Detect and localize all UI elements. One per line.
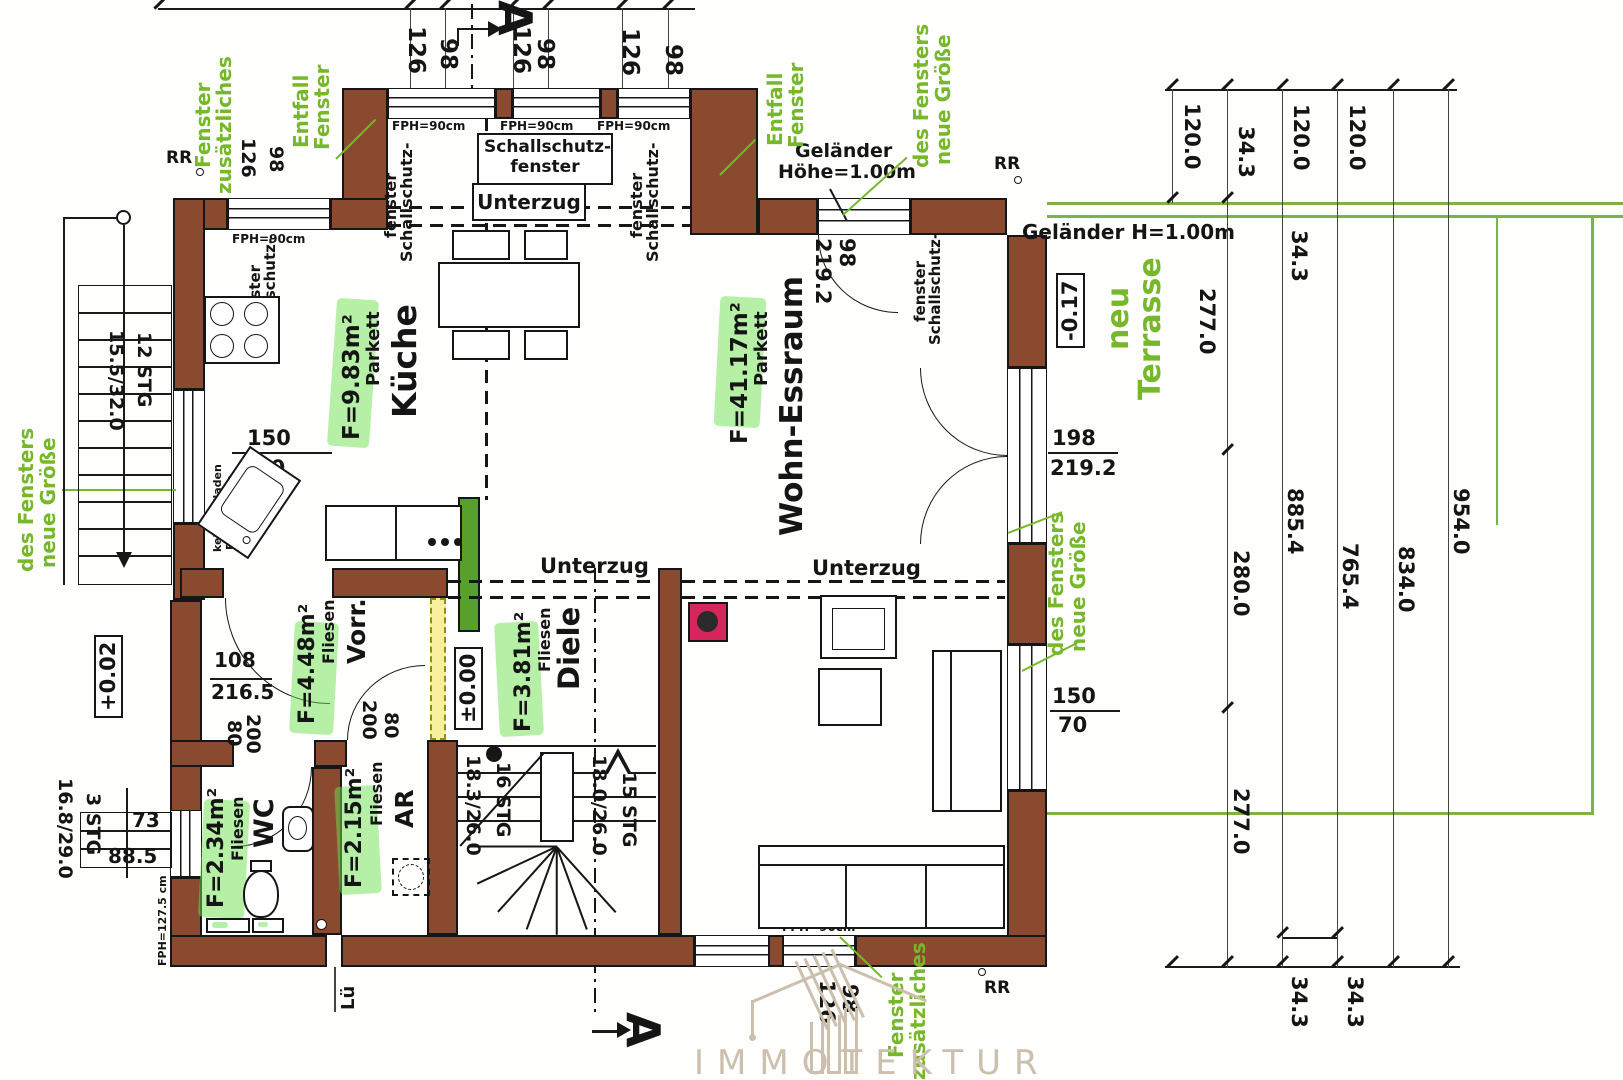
wall <box>180 568 224 598</box>
soundproof-label: fenster <box>913 261 928 322</box>
wall <box>690 88 758 235</box>
cooktop-knob-icon <box>441 538 449 546</box>
dim-label: 70 <box>1058 715 1087 736</box>
rr-icon <box>1014 176 1022 184</box>
terrace-door <box>1007 368 1047 543</box>
dim-label: 34.3 <box>1288 976 1309 1028</box>
dim-label: 280.0 <box>1230 550 1251 616</box>
window <box>173 390 205 523</box>
soundproof-label: fenster <box>629 173 645 238</box>
stair-tread <box>78 474 172 476</box>
terrace-edge <box>1047 215 1623 218</box>
dim-label: 219.2 <box>1050 458 1116 479</box>
dim-label: 98 <box>266 146 285 172</box>
wall <box>427 740 458 935</box>
sofa <box>758 845 1005 929</box>
dim-label: 200 <box>359 700 378 740</box>
section-label-a: A <box>620 1012 666 1048</box>
annotation-new-window-size: neue Größe <box>933 34 953 165</box>
room-floor: Fliesen <box>321 599 337 664</box>
terrace-edge <box>1591 215 1594 815</box>
stair-tread <box>574 796 656 798</box>
section-arrow-line <box>457 28 489 30</box>
annotation-window-removed: Fenster <box>786 62 806 148</box>
soundproof-label: fenster <box>383 173 399 238</box>
dim-chain-line <box>1227 89 1228 968</box>
label-line: Schallschutz- <box>484 137 611 157</box>
stair-post-icon <box>486 746 502 762</box>
dim-chain-line <box>1172 89 1173 203</box>
stair-tread <box>574 820 656 822</box>
dim-label: 98 <box>661 44 684 76</box>
dim-label: 120.0 <box>1346 104 1367 170</box>
annotation-new-window-size: des Fensters <box>16 428 36 572</box>
chimney-flue-icon <box>697 611 718 632</box>
stair-label: 15.5/32.0 <box>106 330 125 431</box>
wall <box>173 198 205 390</box>
wall <box>330 198 388 230</box>
annotation-new-window-size: neue Größe <box>1068 521 1088 652</box>
dim-label: 198 <box>1052 428 1096 449</box>
shelf <box>252 918 284 933</box>
stair-winder-line <box>556 846 616 912</box>
dim-label: 277.0 <box>1196 288 1217 354</box>
section-arrow-line <box>592 1030 618 1033</box>
stair-newel-wall <box>540 752 574 842</box>
annotation-window-removed: Entfall <box>291 75 311 148</box>
door-arc <box>920 368 1007 456</box>
wall <box>855 935 1047 967</box>
terrace-edge <box>1047 202 1623 205</box>
dim-label: 765.4 <box>1339 543 1360 609</box>
section-arrow-line <box>457 30 459 46</box>
wall <box>341 935 695 967</box>
soundproof-label: Schallschutz- <box>928 233 943 345</box>
stair-tread <box>78 528 172 530</box>
dim-label: 126 <box>404 26 427 74</box>
dim-line <box>1050 710 1120 712</box>
dim-line <box>158 8 695 10</box>
annotation-terrace-new: Terrasse <box>1136 257 1166 400</box>
balcony-door <box>818 198 910 235</box>
room-name: AR <box>392 789 417 828</box>
rr-label: RR <box>166 150 192 167</box>
vent-label: Lü <box>340 986 358 1010</box>
wall <box>332 568 448 598</box>
vent-icon <box>316 919 327 930</box>
sofa-line <box>925 864 927 929</box>
room-area: F=2.34m² <box>206 788 228 908</box>
level-marker: +0.02 <box>94 635 123 718</box>
dim-label: 80 <box>224 720 243 746</box>
highlight-small <box>212 922 228 928</box>
beam-label: Unterzug <box>812 558 921 579</box>
railing-label: Geländer <box>795 142 892 161</box>
counter-divider <box>395 505 397 561</box>
fph-label: FPH=127.5 cm <box>157 875 168 966</box>
floor-plan: 126 98 126 98 126 98 A <box>0 0 1623 1080</box>
soundproof-label: Schallschutz- <box>645 142 661 262</box>
dim-line <box>1048 452 1118 454</box>
annotation-new-window-size: des Fensters <box>911 24 931 168</box>
stair-edge <box>458 745 656 747</box>
basin-bowl-icon <box>288 816 307 840</box>
logo-wall-line <box>751 1000 754 1036</box>
stair-label: 16.8/29.0 <box>55 778 74 879</box>
stair-label: 18.0/26.0 <box>589 755 608 856</box>
room-area: F=4.48m² <box>297 604 319 724</box>
rr-label: RR <box>984 980 1010 997</box>
fph-label: FPH=90cm <box>232 233 305 245</box>
burner-icon <box>210 302 234 326</box>
dining-table <box>438 262 580 328</box>
annotation-terrace-new: neu <box>1104 287 1134 350</box>
room-floor: Parkett <box>753 311 771 386</box>
window-mullion <box>768 935 784 967</box>
sink-basin <box>218 463 287 536</box>
fph-label: FPH=90cm <box>392 120 465 132</box>
room-area: F=3.81m² <box>513 612 535 732</box>
side-table <box>818 668 882 726</box>
wall <box>170 877 202 937</box>
room-name: Wohn-Essraum <box>777 276 808 536</box>
room-floor: Fliesen <box>230 796 246 861</box>
soundproof-window-box: Schallschutz-fenster <box>477 133 613 185</box>
stair-down-arrow-icon <box>116 552 132 568</box>
chair <box>524 230 568 260</box>
wall <box>1007 235 1047 368</box>
stair-tread <box>78 312 172 314</box>
wall <box>170 935 327 967</box>
dim-label: 150 <box>1052 686 1096 707</box>
dim-line <box>1165 89 1457 91</box>
soundproof-label: Schallschutz- <box>399 142 415 262</box>
dim-label: 88.5 <box>108 846 157 866</box>
stair-label: 16 STG <box>493 762 512 837</box>
stair-winder-line <box>556 846 588 929</box>
stair-start-icon <box>116 210 131 225</box>
dim-label: 80 <box>381 712 400 738</box>
dim-label: 98 <box>836 238 857 267</box>
burner-icon <box>244 302 268 326</box>
wall <box>1007 790 1047 937</box>
washing-machine-drum-icon <box>398 864 424 890</box>
toilet <box>243 870 279 918</box>
cooktop-knob-icon <box>428 538 436 546</box>
beam-dashed <box>448 580 656 583</box>
beam-dashed <box>682 580 1005 583</box>
wall <box>600 88 618 119</box>
wall <box>170 600 202 812</box>
room-floor: Fliesen <box>537 607 553 672</box>
dim-label: 34.3 <box>1235 126 1256 178</box>
chair <box>452 330 510 360</box>
rr-icon <box>196 168 204 176</box>
fph-label: FPH=90cm <box>500 120 573 132</box>
beam-label: Unterzug <box>540 556 649 577</box>
rr-label: RR <box>994 156 1020 173</box>
kitchen-counter <box>325 505 462 561</box>
dim-chain-line <box>1337 89 1338 968</box>
vent-line <box>334 967 336 1012</box>
railing-label: Geländer H=1.00m <box>1022 222 1235 242</box>
logo-dot <box>749 1034 756 1041</box>
window <box>618 88 690 119</box>
stair-winder-line <box>556 847 558 935</box>
dim-label: 34.3 <box>1344 976 1365 1028</box>
wall <box>758 198 818 235</box>
window <box>228 198 330 230</box>
chaise-line <box>950 652 952 810</box>
window <box>170 810 202 877</box>
sofa-line <box>758 864 1005 866</box>
level-marker: ±0.00 <box>454 647 483 730</box>
room-name: Diele <box>555 607 584 690</box>
dim-label: 73 <box>132 810 160 830</box>
faucet-icon <box>241 535 252 546</box>
wall-new-pier <box>1007 543 1047 645</box>
room-name: Vorr. <box>344 598 369 664</box>
room-floor: Fliesen <box>369 761 385 826</box>
armchair-seat <box>832 608 885 650</box>
dim-chain-line <box>1393 89 1394 968</box>
beam-label-box: Unterzug <box>472 183 586 221</box>
stair-tread <box>78 447 172 449</box>
dim-label: 120.0 <box>1181 103 1202 169</box>
door-arc <box>920 456 1007 544</box>
annotation-new-window-size: des Fensters <box>1046 512 1066 656</box>
room-area: F=41.17m² <box>729 302 752 444</box>
stair-winder-line <box>498 846 558 912</box>
window <box>388 88 495 119</box>
annotation-window-removed: Fenster <box>312 64 332 150</box>
stair-tread <box>78 501 172 503</box>
dim-label: 98 <box>533 38 556 70</box>
dim-label: 126 <box>238 138 257 178</box>
window <box>513 88 600 119</box>
dim-line <box>1165 966 1460 968</box>
label-line: fenster <box>510 157 579 177</box>
dim-label: 219.2 <box>812 238 833 304</box>
annotation-window-removed: Entfall <box>765 73 785 146</box>
chair <box>524 330 568 360</box>
annotation-additional-window: Fenster <box>193 82 213 168</box>
fph-label: FPH=90cm <box>597 120 670 132</box>
section-label-a: A <box>492 0 538 36</box>
section-line <box>471 4 473 88</box>
beam-label: Unterzug <box>477 192 581 212</box>
dim-label: 150 <box>247 428 291 449</box>
wall <box>495 88 513 119</box>
stair-label: 15 STG <box>619 772 638 847</box>
terrace-railing <box>1496 215 1498 525</box>
watermark-text: IMMOTEKTUR <box>694 1046 1051 1080</box>
room-floor: Parkett <box>365 311 383 386</box>
chaise <box>932 650 1002 812</box>
room-area: F=9.83m² <box>341 314 364 440</box>
room-name: Küche <box>388 304 421 418</box>
dim-label: 834.0 <box>1395 546 1416 612</box>
wall <box>314 740 347 767</box>
stair-label: 18.3/26.0 <box>463 755 482 856</box>
dim-label: 126 <box>618 28 641 76</box>
wall <box>910 198 1007 235</box>
dim-label: 885.4 <box>1284 488 1305 554</box>
level-marker: -0.17 <box>1056 273 1085 348</box>
sofa-line <box>845 864 847 929</box>
cooktop-knob-icon <box>454 538 462 546</box>
stair-edge <box>63 217 65 585</box>
chair <box>452 230 510 260</box>
rr-icon <box>978 968 986 976</box>
stair-label: 12 STG <box>134 332 153 407</box>
dim-label: 34.3 <box>1288 230 1309 282</box>
dim-label: 277.0 <box>1230 788 1251 854</box>
annotation-new-window-size: neue Größe <box>38 437 58 568</box>
room-area: F=2.15m² <box>344 768 366 888</box>
burner-icon <box>244 334 268 358</box>
dim-label: 200 <box>243 714 262 754</box>
dim-line <box>1282 937 1338 939</box>
dim-label: 216.5 <box>211 682 274 702</box>
dim-label: 954.0 <box>1450 488 1471 554</box>
wall-removed-yellow <box>430 598 446 740</box>
wall <box>658 568 682 935</box>
annotation-additional-window: zusätzliches <box>214 56 234 194</box>
dim-label: 108 <box>214 650 256 670</box>
beam-dashed <box>448 596 656 599</box>
dim-label: 98 <box>436 38 459 70</box>
dim-label: 120.0 <box>1290 104 1311 170</box>
room-name: WC <box>251 798 278 848</box>
highlight-small <box>258 922 268 927</box>
terrace-edge <box>1047 812 1593 815</box>
burner-icon <box>210 334 234 358</box>
stair-label: 3 STG <box>83 793 102 855</box>
